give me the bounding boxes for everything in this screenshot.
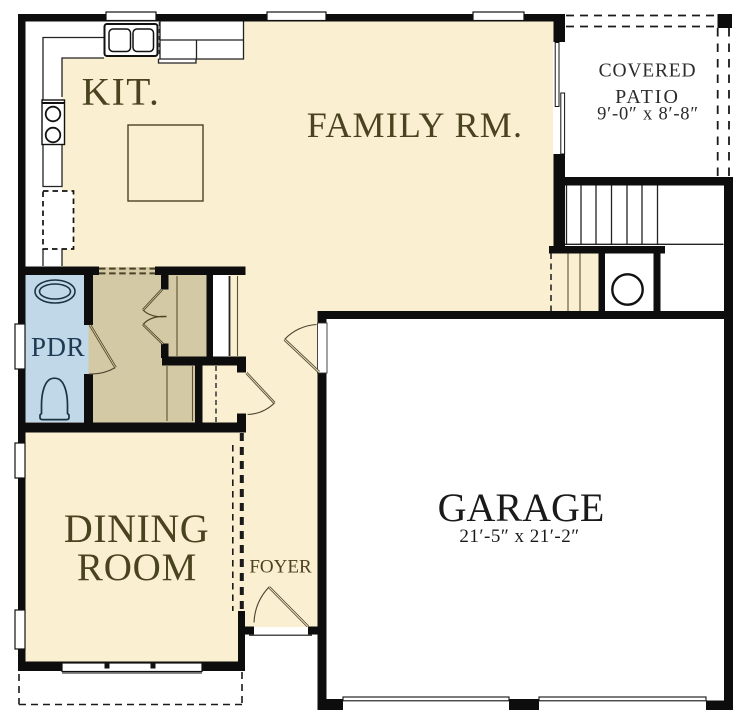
svg-text:KIT.: KIT. — [82, 70, 161, 114]
svg-text:DINING: DINING — [64, 506, 209, 551]
svg-text:21′-5″ x 21′-2″: 21′-5″ x 21′-2″ — [459, 526, 579, 547]
svg-text:FAMILY RM.: FAMILY RM. — [307, 105, 523, 145]
svg-text:PDR: PDR — [31, 332, 85, 362]
svg-text:ROOM: ROOM — [77, 546, 197, 589]
svg-text:GARAGE: GARAGE — [438, 485, 605, 530]
svg-text:COVERED: COVERED — [599, 61, 697, 82]
svg-text:9′-0″ x 8′-8″: 9′-0″ x 8′-8″ — [597, 105, 699, 125]
svg-text:FOYER: FOYER — [249, 557, 312, 578]
